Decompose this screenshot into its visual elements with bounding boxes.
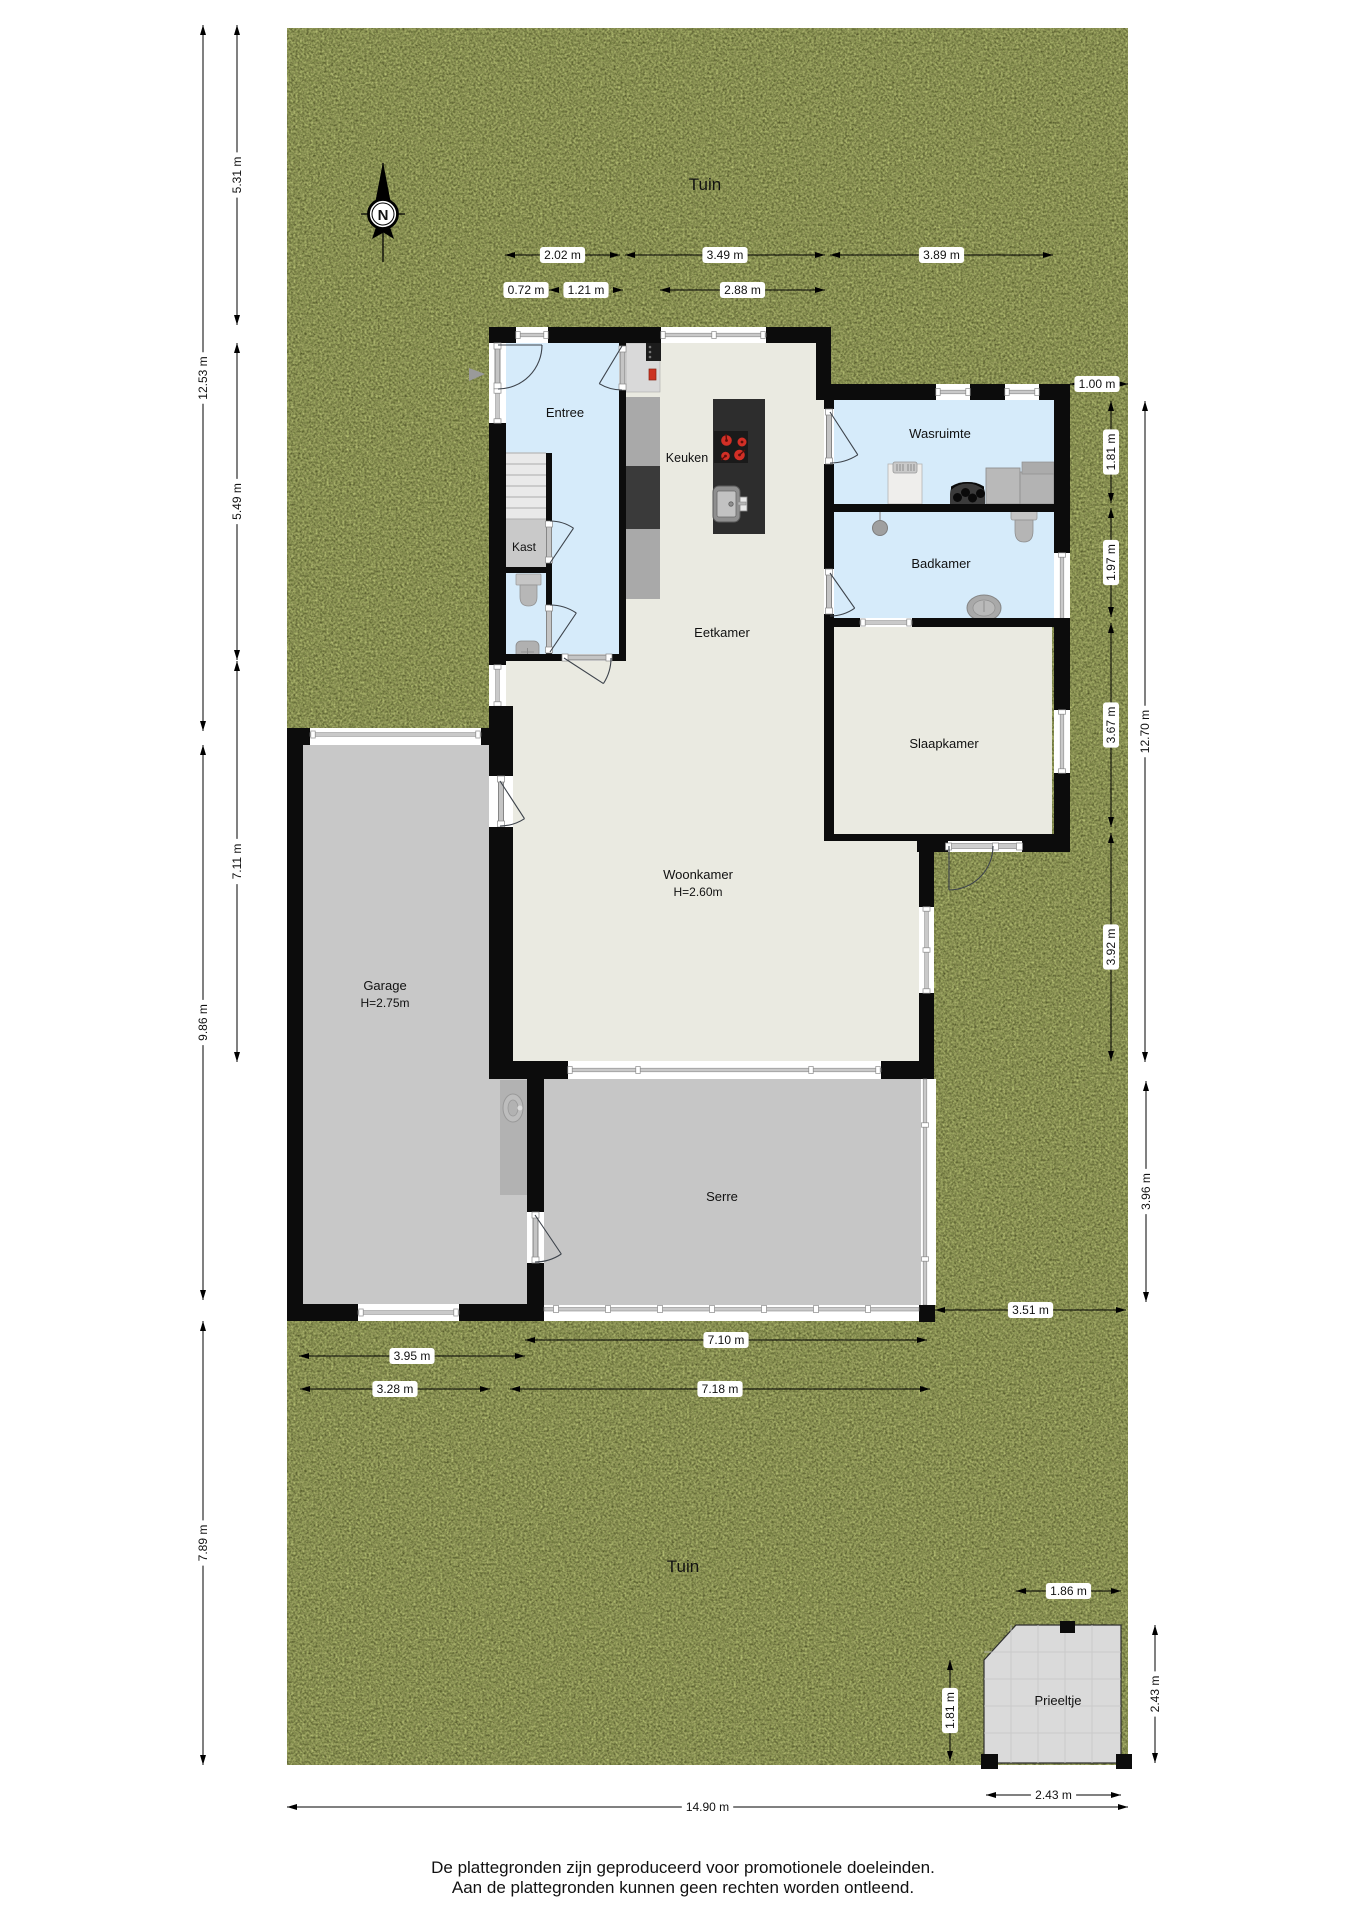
svg-text:1.81 m: 1.81 m — [1104, 434, 1118, 471]
svg-text:Keuken: Keuken — [666, 451, 708, 465]
svg-text:1.21 m: 1.21 m — [568, 283, 605, 297]
svg-text:Badkamer: Badkamer — [911, 556, 971, 571]
svg-text:Aan de plattegronden kunnen ge: Aan de plattegronden kunnen geen rechten… — [452, 1878, 914, 1897]
svg-text:3.96 m: 3.96 m — [1139, 1173, 1153, 1210]
svg-text:3.28 m: 3.28 m — [377, 1382, 414, 1396]
svg-text:1.86 m: 1.86 m — [1050, 1584, 1087, 1598]
svg-text:2.02 m: 2.02 m — [544, 248, 581, 262]
svg-text:2.43 m: 2.43 m — [1035, 1788, 1072, 1802]
svg-text:7.10 m: 7.10 m — [708, 1333, 745, 1347]
svg-text:2.88 m: 2.88 m — [724, 283, 761, 297]
svg-text:Garage: Garage — [363, 978, 406, 993]
svg-text:7.18 m: 7.18 m — [702, 1382, 739, 1396]
svg-text:12.70 m: 12.70 m — [1138, 710, 1152, 753]
svg-text:3.51 m: 3.51 m — [1012, 1303, 1049, 1317]
svg-text:14.90 m: 14.90 m — [686, 1800, 729, 1814]
svg-text:1.00 m: 1.00 m — [1079, 377, 1116, 391]
svg-text:Slaapkamer: Slaapkamer — [909, 736, 979, 751]
svg-text:3.89 m: 3.89 m — [923, 248, 960, 262]
svg-text:3.49 m: 3.49 m — [707, 248, 744, 262]
svg-text:De plattegronden zijn geproduc: De plattegronden zijn geproduceerd voor … — [431, 1858, 935, 1877]
svg-text:Prieeltje: Prieeltje — [1035, 1693, 1082, 1708]
svg-text:3.67 m: 3.67 m — [1104, 707, 1118, 744]
svg-text:Entree: Entree — [546, 405, 584, 420]
svg-text:7.11 m: 7.11 m — [230, 844, 244, 880]
svg-text:12.53 m: 12.53 m — [196, 356, 210, 399]
svg-text:N: N — [378, 207, 389, 224]
svg-text:5.31 m: 5.31 m — [230, 157, 244, 194]
svg-text:H=2.60m: H=2.60m — [673, 885, 722, 899]
svg-text:H=2.75m: H=2.75m — [360, 996, 409, 1010]
svg-text:Tuin: Tuin — [667, 1557, 699, 1576]
svg-text:0.72 m: 0.72 m — [508, 283, 545, 297]
svg-text:7.89 m: 7.89 m — [196, 1525, 210, 1562]
svg-text:1.81 m: 1.81 m — [943, 1692, 957, 1729]
svg-text:3.92 m: 3.92 m — [1104, 929, 1118, 966]
svg-text:3.95 m: 3.95 m — [394, 1349, 431, 1363]
svg-text:Serre: Serre — [706, 1189, 738, 1204]
svg-text:Wasruimte: Wasruimte — [909, 426, 971, 441]
svg-text:2.43 m: 2.43 m — [1148, 1676, 1162, 1713]
svg-text:Eetkamer: Eetkamer — [694, 625, 750, 640]
svg-text:Tuin: Tuin — [689, 175, 721, 194]
svg-text:Kast: Kast — [512, 540, 537, 554]
svg-text:Woonkamer: Woonkamer — [663, 867, 734, 882]
svg-text:1.97 m: 1.97 m — [1104, 544, 1118, 581]
svg-text:5.49 m: 5.49 m — [230, 483, 244, 520]
svg-text:9.86 m: 9.86 m — [196, 1004, 210, 1041]
